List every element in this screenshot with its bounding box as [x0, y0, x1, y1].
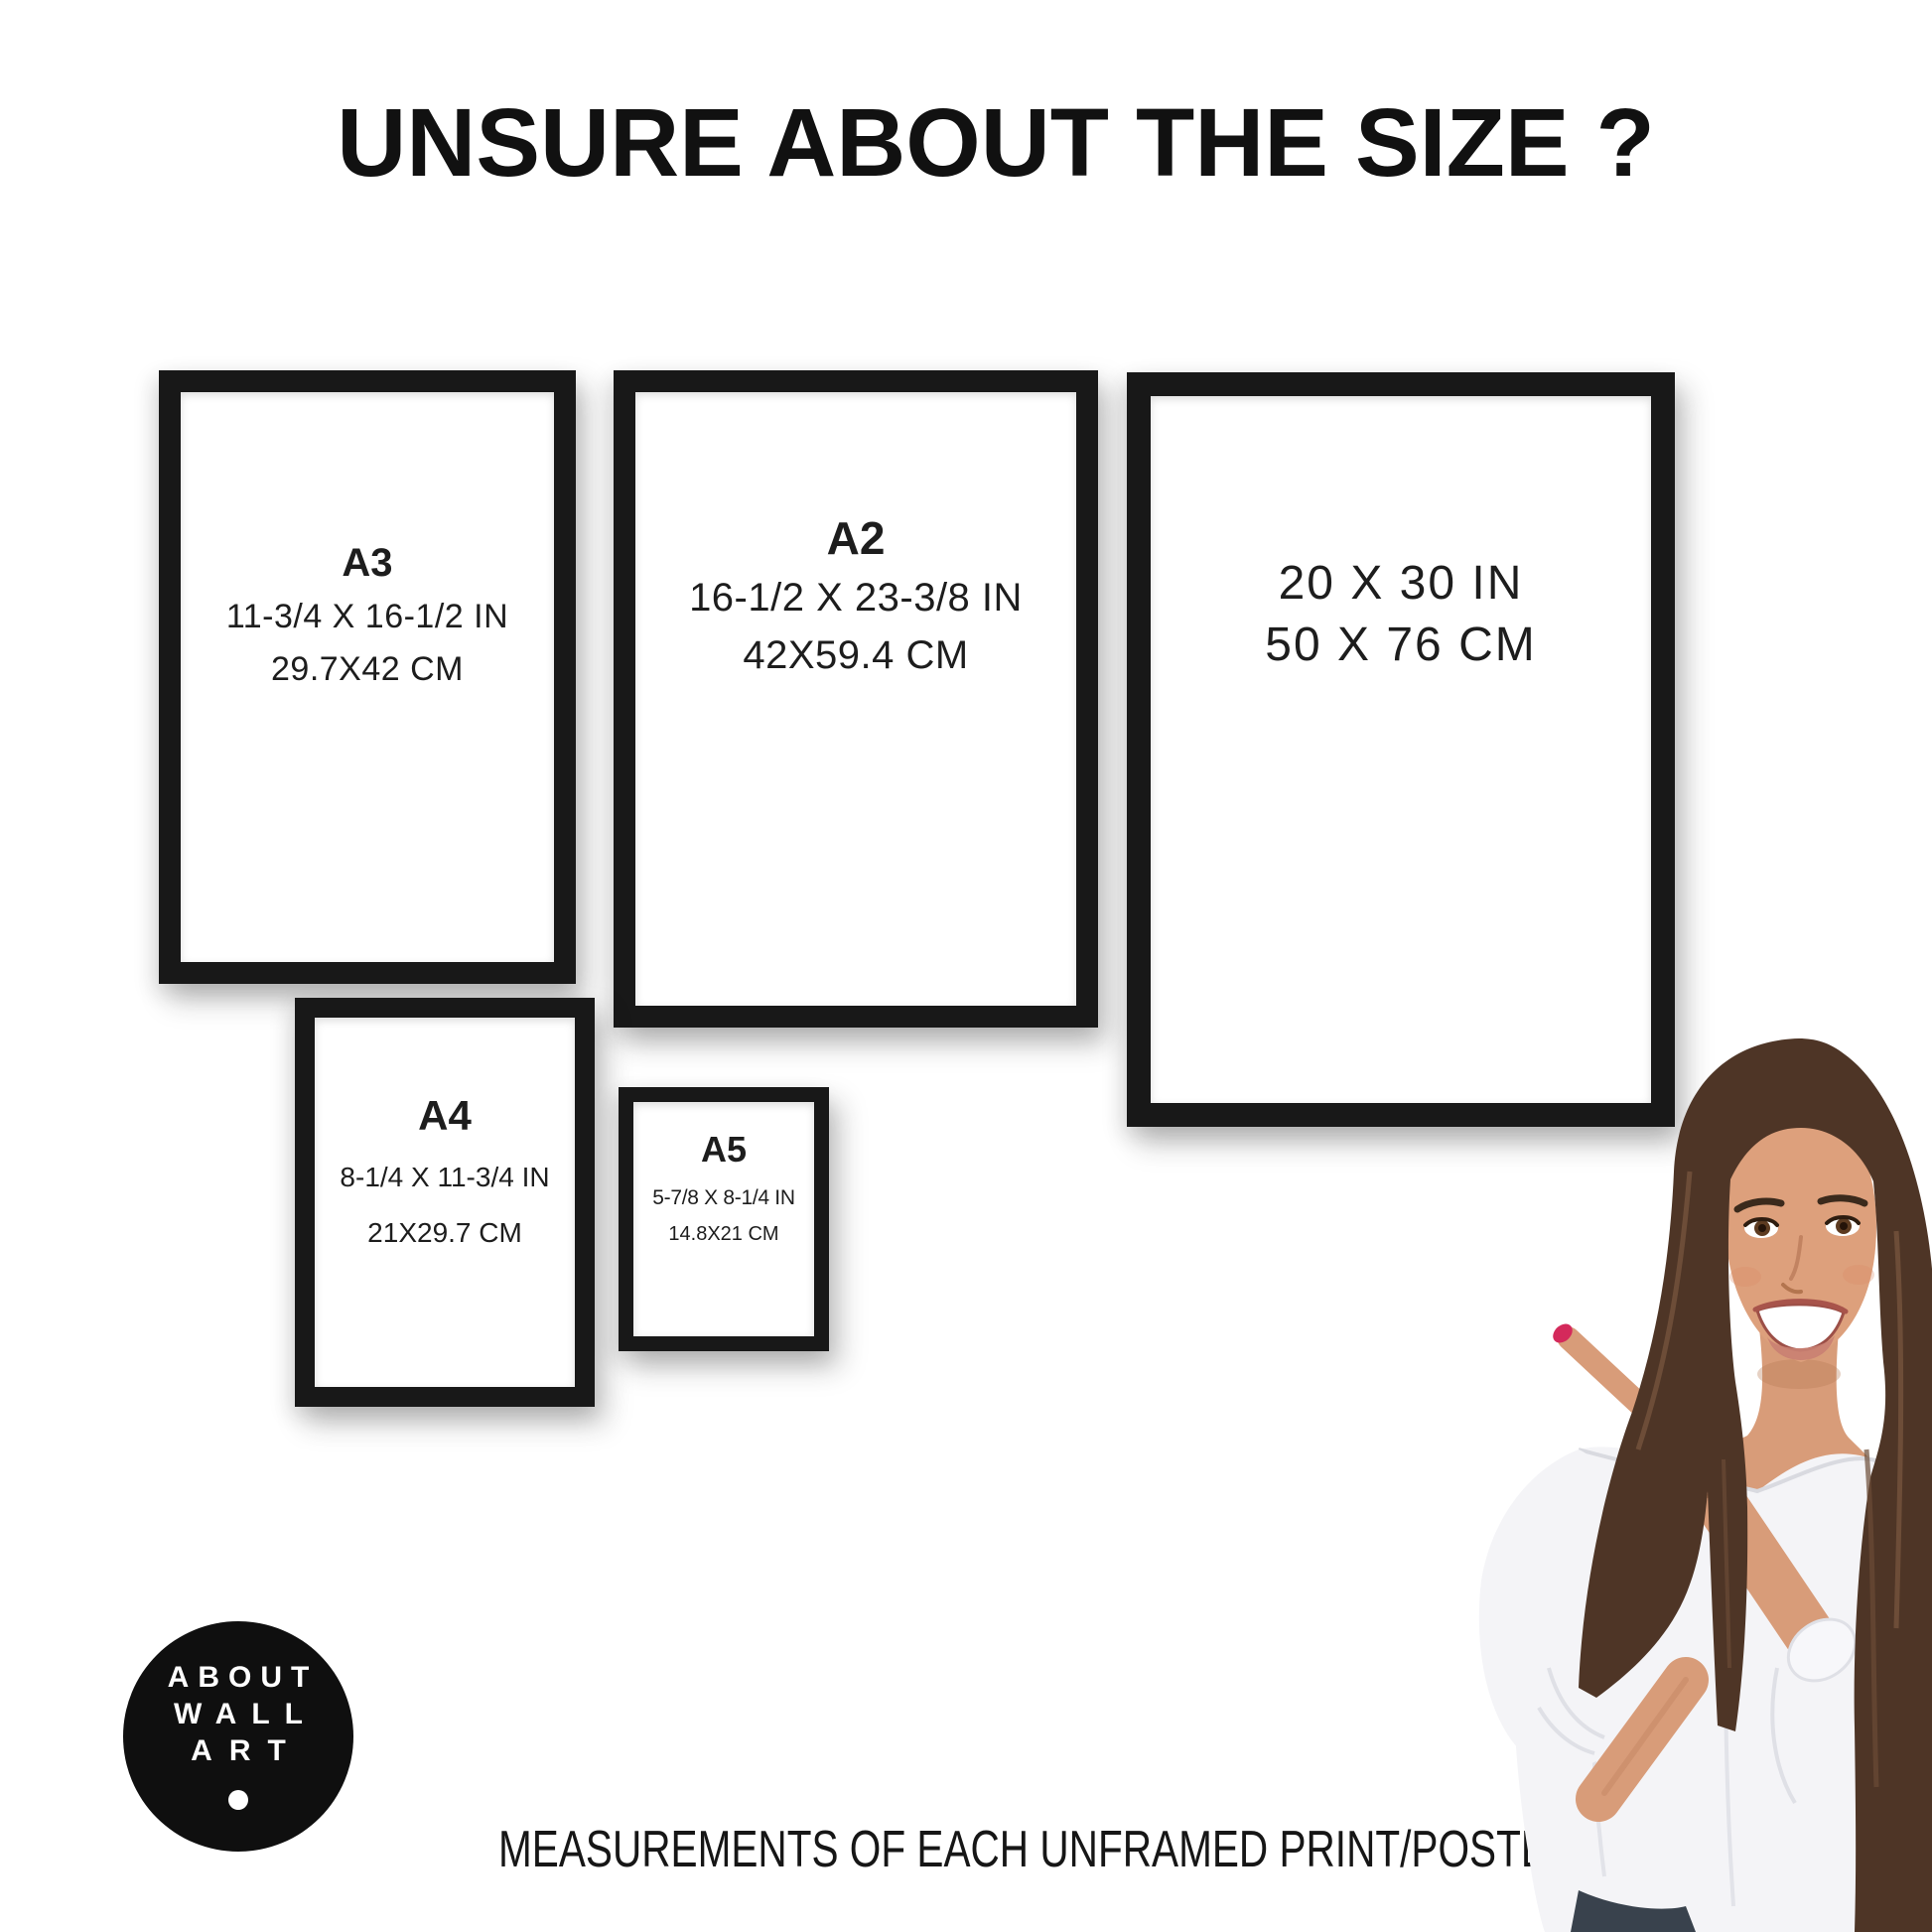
logo-line-1: ABOUT	[123, 1659, 362, 1696]
size-inches: 5-7/8 X 8-1/4 IN	[633, 1185, 814, 1210]
brand-logo: ABOUT WALL ART	[123, 1621, 353, 1852]
frame-a5-text: A5 5-7/8 X 8-1/4 IN 14.8X21 CM	[633, 1102, 814, 1246]
logo-line-3: ART	[123, 1732, 370, 1769]
frame-a4: A4 8-1/4 X 11-3/4 IN 21X29.7 CM	[295, 998, 595, 1407]
size-label: A2	[635, 513, 1076, 564]
size-cm: 50 X 76 CM	[1151, 615, 1651, 676]
page-title: UNSURE ABOUT THE SIZE ?	[60, 87, 1932, 199]
model-photo	[1430, 1033, 1932, 1932]
size-inches: 16-1/2 X 23-3/8 IN	[635, 574, 1076, 621]
size-guide-poster: UNSURE ABOUT THE SIZE ? A3 11-3/4 X 16-1…	[0, 0, 1932, 1932]
size-label: A5	[633, 1130, 814, 1170]
frame-a3: A3 11-3/4 X 16-1/2 IN 29.7X42 CM	[159, 370, 576, 984]
size-inches: 20 X 30 IN	[1151, 553, 1651, 615]
size-cm: 21X29.7 CM	[315, 1216, 575, 1250]
frame-20x30-text: 20 X 30 IN 50 X 76 CM	[1151, 396, 1651, 677]
size-inches: 8-1/4 X 11-3/4 IN	[315, 1161, 575, 1194]
frame-a4-text: A4 8-1/4 X 11-3/4 IN 21X29.7 CM	[315, 1018, 575, 1249]
frame-20x30: 20 X 30 IN 50 X 76 CM	[1127, 372, 1675, 1127]
size-label: A3	[181, 541, 554, 585]
frame-a5: A5 5-7/8 X 8-1/4 IN 14.8X21 CM	[619, 1087, 829, 1351]
size-cm: 29.7X42 CM	[181, 649, 554, 690]
logo-line-2: WALL	[123, 1696, 368, 1732]
logo-dot-icon	[228, 1790, 248, 1810]
size-label: A4	[315, 1093, 575, 1139]
frame-a3-text: A3 11-3/4 X 16-1/2 IN 29.7X42 CM	[181, 392, 554, 690]
size-cm: 14.8X21 CM	[633, 1222, 814, 1246]
caption: MEASUREMENTS OF EACH UNFRAMED PRINT/POST…	[498, 1820, 1273, 1879]
size-cm: 42X59.4 CM	[635, 631, 1076, 679]
size-inches: 11-3/4 X 16-1/2 IN	[181, 597, 554, 637]
frame-a2: A2 16-1/2 X 23-3/8 IN 42X59.4 CM	[614, 370, 1098, 1028]
brand-logo-text: ABOUT WALL ART	[123, 1659, 353, 1769]
frame-a2-text: A2 16-1/2 X 23-3/8 IN 42X59.4 CM	[635, 392, 1076, 679]
